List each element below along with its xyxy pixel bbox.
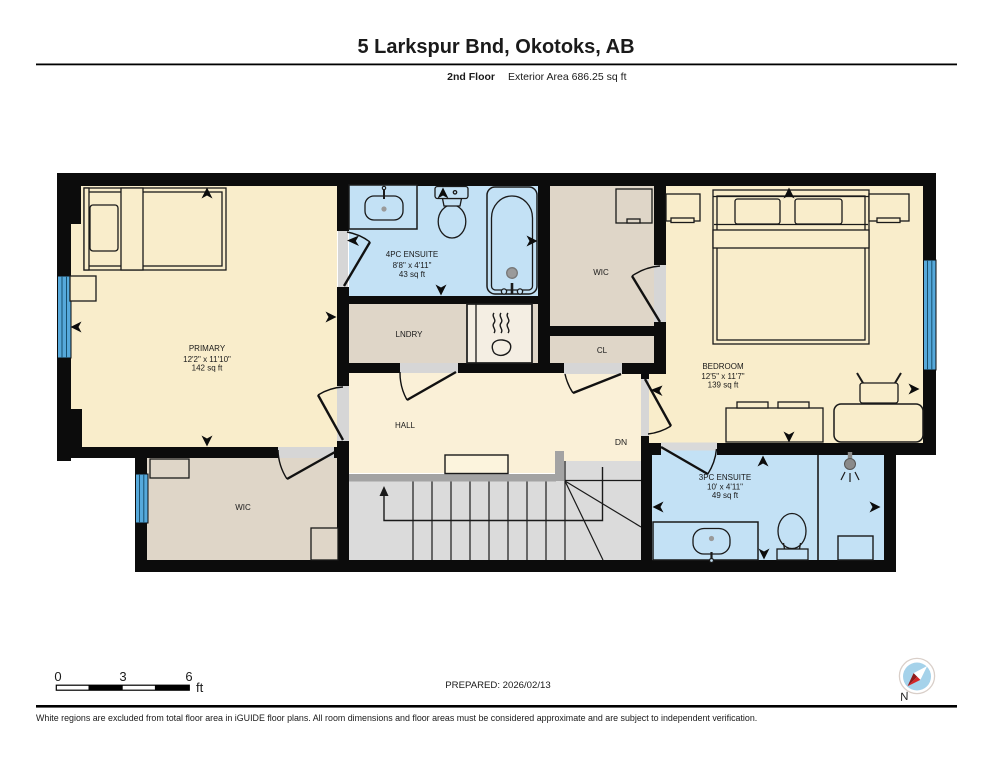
svg-text:6: 6	[185, 669, 192, 684]
svg-text:43 sq ft: 43 sq ft	[399, 270, 426, 279]
svg-text:3PC ENSUITE: 3PC ENSUITE	[699, 473, 751, 482]
svg-text:139 sq ft: 139 sq ft	[708, 381, 739, 390]
svg-text:BEDROOM: BEDROOM	[702, 362, 744, 371]
svg-text:HALL: HALL	[395, 421, 416, 430]
svg-text:CL: CL	[597, 346, 608, 355]
svg-text:142 sq ft: 142 sq ft	[192, 364, 223, 373]
svg-text:8'8" x 4'11": 8'8" x 4'11"	[393, 261, 432, 270]
svg-text:Exterior Area 686.25 sq ft: Exterior Area 686.25 sq ft	[508, 71, 627, 83]
svg-text:LNDRY: LNDRY	[396, 330, 424, 339]
svg-text:PRIMARY: PRIMARY	[189, 344, 226, 353]
svg-text:White regions are excluded fro: White regions are excluded from total fl…	[36, 713, 757, 723]
svg-text:49 sq ft: 49 sq ft	[712, 491, 739, 500]
svg-text:5 Larkspur Bnd, Okotoks, AB: 5 Larkspur Bnd, Okotoks, AB	[357, 36, 634, 58]
svg-text:0: 0	[54, 669, 61, 684]
svg-text:WIC: WIC	[593, 268, 609, 277]
svg-text:DN: DN	[615, 437, 627, 447]
svg-text:ft: ft	[196, 680, 204, 695]
svg-text:4PC ENSUITE: 4PC ENSUITE	[386, 250, 438, 259]
svg-text:PREPARED: 2026/02/13: PREPARED: 2026/02/13	[445, 680, 550, 691]
svg-text:WIC: WIC	[235, 503, 251, 512]
svg-text:2nd Floor: 2nd Floor	[447, 71, 495, 83]
svg-text:3: 3	[119, 669, 126, 684]
